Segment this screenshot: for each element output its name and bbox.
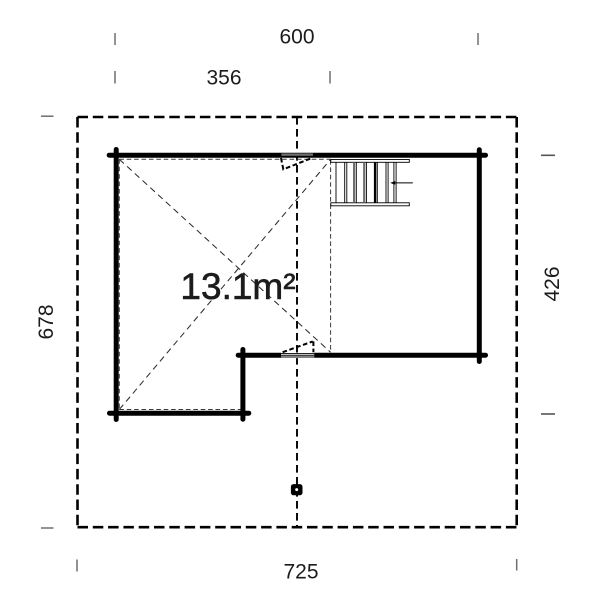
svg-text:725: 725 xyxy=(283,561,318,584)
svg-text:678: 678 xyxy=(35,304,58,339)
svg-text:356: 356 xyxy=(206,67,241,90)
svg-text:600: 600 xyxy=(279,26,314,49)
svg-text:426: 426 xyxy=(541,266,564,301)
svg-text:13.1m²: 13.1m² xyxy=(180,266,295,307)
